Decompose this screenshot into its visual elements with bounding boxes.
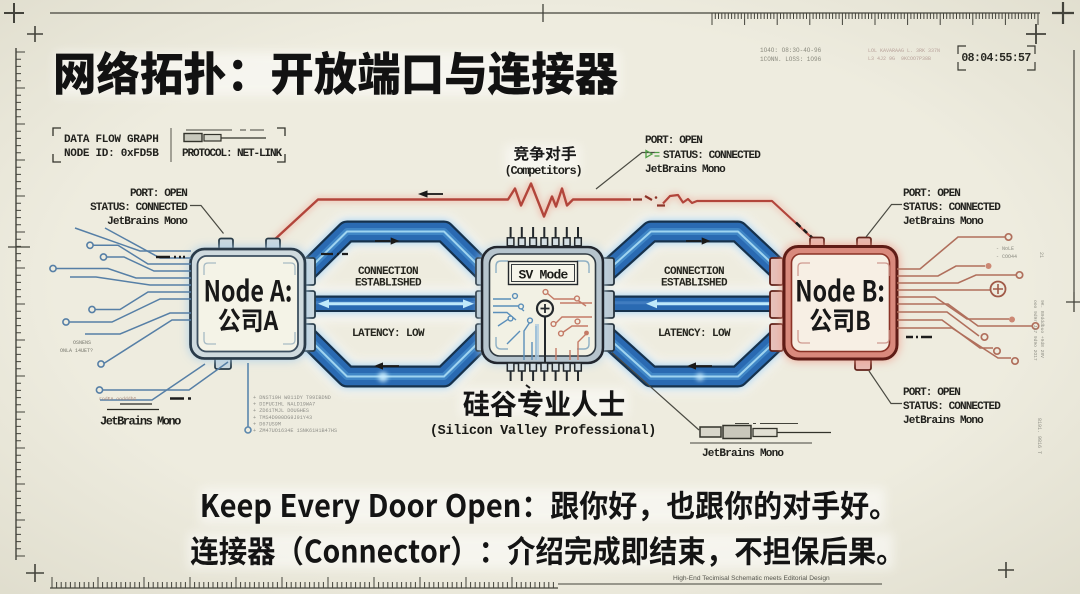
svg-text:PORT: OPEN: PORT: OPEN — [130, 188, 187, 200]
svg-text:ONLA 14UET?: ONLA 14UET? — [60, 348, 93, 354]
svg-text:08:04:55:57: 08:04:55:57 — [961, 52, 1031, 65]
svg-text:DATA FLOW GRAPH: DATA FLOW GRAPH — [64, 134, 159, 146]
svg-text:21: 21 — [1038, 252, 1044, 258]
svg-text:STATUS: CONNECTED: STATUS: CONNECTED — [903, 401, 1001, 413]
svg-text:(Competitors): (Competitors) — [505, 164, 582, 178]
svg-text:- NoLE: - NoLE — [996, 246, 1014, 252]
svg-text:LOL KAVARAAG L. 3RK 337N: LOL KAVARAAG L. 3RK 337N — [868, 48, 940, 54]
svg-text:LATENCY: LOW: LATENCY: LOW — [352, 328, 425, 340]
svg-text:L3 4J2 9G 9KCOO7P38B: L3 4J2 9G 9KCOO7P38B — [868, 56, 931, 62]
svg-text:JetBrains Mono: JetBrains Mono — [702, 448, 784, 460]
svg-text:rodEA oodddbG: rodEA oodddbG — [99, 396, 137, 402]
svg-text:JetBrains Mono: JetBrains Mono — [903, 216, 984, 228]
svg-text:STATUS: CONNECTED: STATUS: CONNECTED — [90, 202, 188, 214]
svg-text:+ ZD61TMJL DOUGHES: + ZD61TMJL DOUGHES — [253, 408, 309, 414]
svg-text:PROTOCOL: NET-LINK: PROTOCOL: NET-LINK — [182, 148, 283, 160]
svg-text:1CONN. LOSS: 1O96: 1CONN. LOSS: 1O96 — [760, 56, 822, 63]
svg-text:STATUS: CONNECTED: STATUS: CONNECTED — [903, 202, 1001, 214]
svg-text:+ DIPUCIHL NALD19WA7: + DIPUCIHL NALD19WA7 — [253, 402, 315, 408]
svg-text:High-End Tecimisal Schematic m: High-End Tecimisal Schematic meets Edito… — [673, 575, 830, 582]
svg-text:8191. 9816 T: 8191. 9816 T — [1036, 418, 1042, 454]
svg-text:PORT: OPEN: PORT: OPEN — [903, 188, 960, 200]
svg-text:STATUS: CONNECTED: STATUS: CONNECTED — [663, 150, 761, 162]
svg-text:OSNENS: OSNENS — [73, 340, 91, 346]
svg-text:PORT: OPEN: PORT: OPEN — [645, 135, 702, 147]
svg-text:(Silicon Valley Professional): (Silicon Valley Professional) — [430, 424, 656, 439]
svg-text:JetBrains Mono: JetBrains Mono — [107, 216, 188, 228]
svg-text:PORT: OPEN: PORT: OPEN — [903, 387, 960, 399]
svg-text:CONNECTION: CONNECTION — [358, 266, 418, 278]
svg-text:LATENCY: LOW: LATENCY: LOW — [658, 328, 731, 340]
svg-text:SV Mode: SV Mode — [518, 268, 568, 283]
svg-text:NODE ID: 0xFD5B: NODE ID: 0xFD5B — [64, 148, 159, 160]
svg-text:+ TMS4D900DG9J91Y43: + TMS4D900DG9J91Y43 — [253, 415, 312, 421]
svg-text:- COO44: - COO44 — [996, 254, 1017, 260]
svg-text:+ ZM47UO1634E 1SNK61H1B47HS: + ZM47UO1634E 1SNK61H1B47HS — [253, 428, 337, 434]
svg-text:ooo 9d9r JA7 9d9o 2O17: ooo 9d9r JA7 9d9o 2O17 — [1032, 300, 1038, 361]
svg-text:1O4O: O8:3O-4O-96: 1O4O: O8:3O-4O-96 — [760, 47, 822, 54]
svg-text:CONNECTION: CONNECTION — [664, 266, 724, 278]
svg-text:+ D67US9M: + D67US9M — [253, 421, 281, 427]
svg-text:ESTABLISHED: ESTABLISHED — [355, 278, 422, 290]
svg-text:ESTABLISHED: ESTABLISHED — [661, 278, 728, 290]
svg-text:JetBrains Mono: JetBrains Mono — [903, 415, 984, 427]
svg-text:JetBrains Mono: JetBrains Mono — [100, 415, 181, 429]
svg-text:9K. B9dddbuo +9d8 28V: 9K. B9dddbuo +9d8 28V — [1039, 300, 1045, 358]
svg-text:JetBrains Mono: JetBrains Mono — [645, 164, 726, 176]
svg-text:+ DNST19H W011DY T99IBDND: + DNST19H W011DY T99IBDND — [253, 395, 331, 401]
